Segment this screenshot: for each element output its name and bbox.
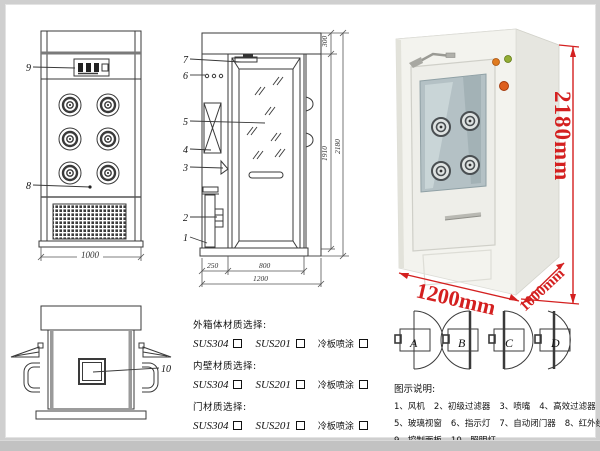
material-options-row: SUS304 SUS201 冷板喷涂 [193,337,391,350]
legend-item: 6、指示灯 [451,417,490,429]
callout-3-label: 3 [182,163,188,174]
material-option-label: SUS304 [193,420,228,432]
material-checkbox[interactable] [233,339,242,348]
side-view-drawing: 7 6 5 4 3 2 1 300 1910 2180 250 800 1200 [177,11,363,303]
material-checkbox[interactable] [296,380,305,389]
material-option-label: SUS201 [255,420,290,432]
photo-dim-height: 2180mm [550,91,575,181]
callout-5-label: 5 [183,117,188,128]
callout-9-label: 9 [26,63,31,74]
callout-7-label: 7 [183,55,189,66]
dim-300: 300 [320,36,329,49]
door-option-d-label: D [550,336,560,350]
callout-6-label: 6 [183,71,188,82]
legend-row: 5、玻璃视窗 6、指示灯 7、自动闭门器 8、红外线感应器 [394,417,599,429]
indicator-light-orange [493,59,500,66]
callout-1-label: 1 [183,233,188,244]
material-options-row: SUS304 SUS201 冷板喷涂 [193,378,391,391]
material-checkbox[interactable] [359,339,368,348]
callout-8-label: 8 [26,181,31,192]
drawing-canvas: 9 8 1000 [5,4,596,438]
left-door-open [11,343,43,392]
material-selection-block: 外箱体材质选择: SUS304 SUS201 冷板喷涂 内壁材质选择: SUS3… [193,317,391,440]
legend-item: 2、初级过滤器 [434,400,490,412]
legend-row: 1、风机 2、初级过滤器 3、喷嘴 4、高效过滤器 [394,400,599,412]
callout-10-label: 10 [161,364,171,375]
material-option-label: SUS201 [255,338,290,350]
callout-4-label: 4 [183,145,188,156]
dim-2180: 2180 [333,139,342,154]
material-option-label: SUS304 [193,379,228,391]
page-frame: 9 8 1000 [0,0,600,450]
material-option-label: 冷板喷涂 [318,378,354,391]
dim-1200: 1200 [253,274,268,283]
front-width-value: 1000 [81,250,100,260]
dim-250: 250 [207,261,219,270]
legend-item: 5、玻璃视窗 [394,417,442,429]
door-option-a-label: A [409,336,418,350]
legend-item: 3、喷嘴 [499,400,530,412]
dim-800: 800 [259,261,271,270]
material-section-label: 外箱体材质选择: [193,317,391,331]
callout-2-label: 2 [183,213,188,224]
front-view-drawing: 9 8 1000 [19,21,181,293]
material-checkbox[interactable] [359,421,368,430]
legend-item: 7、自动闭门器 [499,417,555,429]
door-option-c-label: C [505,336,514,350]
return-air-grille [53,204,126,239]
door-swing-options: A B C D [392,307,592,375]
legend-title: 图示说明: [394,381,599,395]
legend-item: 4、高效过滤器 [539,400,595,412]
door-option-a [395,311,443,369]
legend-item: 1、风机 [394,400,425,412]
top-view-plenum [41,306,141,330]
air-shower-photo: 2180mm 1200mm 1000mm [363,5,600,317]
material-section-label: 门材质选择: [193,399,391,413]
material-options-row: SUS304 SUS201 冷板喷涂 [193,419,391,432]
start-button[interactable] [500,82,509,91]
door-option-b-label: B [458,336,466,350]
top-view-drawing: 10 [9,297,205,435]
material-option-label: 冷板喷涂 [318,419,354,432]
material-checkbox[interactable] [359,380,368,389]
material-checkbox[interactable] [296,421,305,430]
material-option-label: SUS304 [193,338,228,350]
top-view-chamber [48,330,134,409]
frame-bottom-strip [0,440,600,451]
indicator-light-green [505,56,512,63]
legend-item: 8、红外线感应器 [565,417,600,429]
material-checkbox[interactable] [233,380,242,389]
material-checkbox[interactable] [233,421,242,430]
material-section-label: 内壁材质选择: [193,358,391,372]
side-cabinet-outline [202,33,321,256]
material-checkbox[interactable] [296,339,305,348]
material-option-label: 冷板喷涂 [318,337,354,350]
dim-1910: 1910 [320,146,329,161]
material-option-label: SUS201 [255,379,290,391]
